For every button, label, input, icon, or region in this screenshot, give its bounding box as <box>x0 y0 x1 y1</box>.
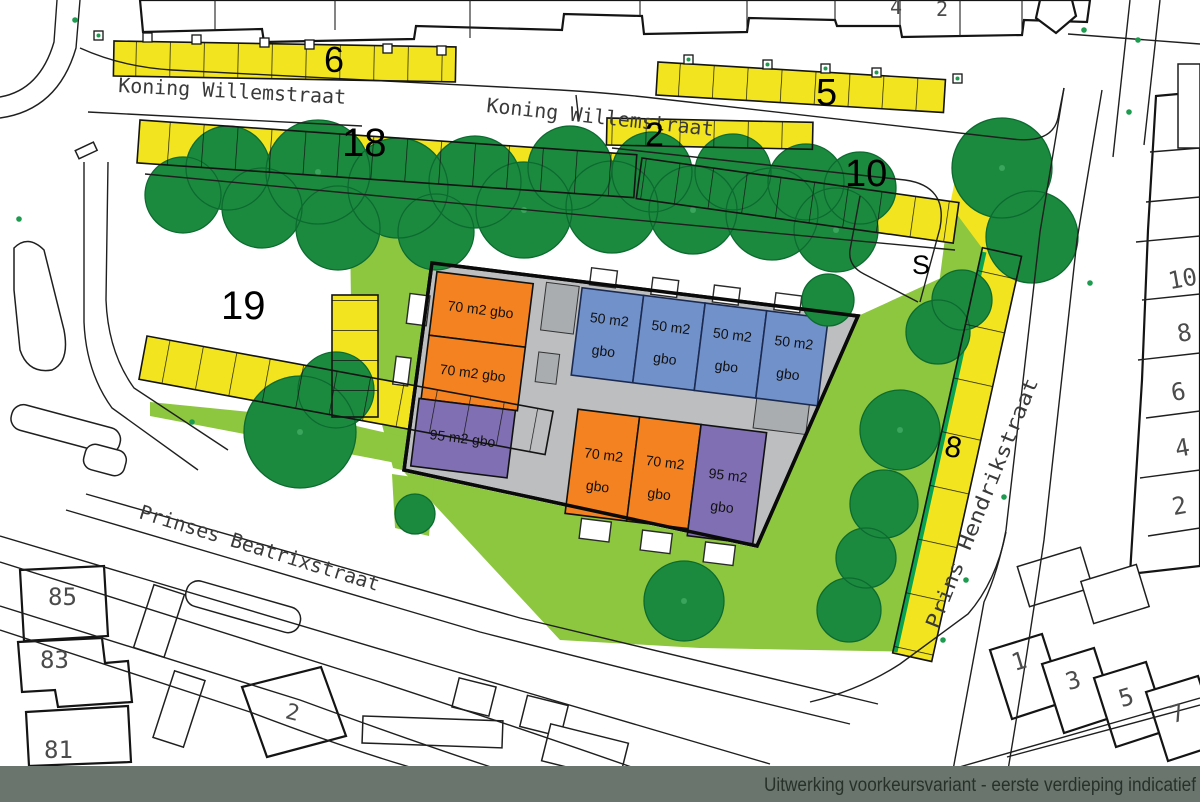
house-number-85: 85 <box>48 583 77 611</box>
area-number-6: 6 <box>324 39 344 80</box>
house-81 <box>26 706 131 766</box>
unit-95m2 <box>687 424 766 543</box>
area-number-2: 2 <box>645 116 664 154</box>
area-number-18: 18 <box>342 121 387 165</box>
plan-drawing: 70 m2 gbo 70 m2 gbo 95 m2 gbo 50 m2 gbo … <box>0 0 1200 802</box>
street-name-beatrix: Prinses Beatrixstraat <box>137 500 383 596</box>
house-number-83: 83 <box>40 646 69 674</box>
house-number-t2: 2 <box>936 0 948 21</box>
unit-label: gbo <box>647 484 672 503</box>
stair-core <box>535 352 560 384</box>
house-topright <box>1178 64 1200 148</box>
street-name-koning-right: Koning Willemstraat <box>485 93 714 141</box>
porch <box>640 530 672 554</box>
caption-bar: Uitwerking voorkeursvariant - eerste ver… <box>0 766 1200 802</box>
site-plan-map: 70 m2 gbo 70 m2 gbo 95 m2 gbo 50 m2 gbo … <box>0 0 1200 802</box>
porch <box>703 542 735 566</box>
traffic-island-3 <box>81 442 128 478</box>
house-number-81: 81 <box>44 736 73 764</box>
unit-label: gbo <box>714 357 739 376</box>
unit-label: gbo <box>585 477 610 496</box>
traffic-island-1 <box>183 578 304 636</box>
unit-50m2 <box>571 288 643 383</box>
unit-50m2 <box>633 295 705 390</box>
area-number-19: 19 <box>221 284 266 328</box>
house-number-r10: 10 <box>1166 263 1199 296</box>
unit-label: gbo <box>591 341 616 360</box>
house-number-t4: 4 <box>890 0 902 19</box>
shed-1 <box>452 678 496 716</box>
structure-br-2 <box>1081 564 1149 623</box>
traffic-island-4 <box>75 142 97 159</box>
house-83 <box>18 638 132 707</box>
area-number-10: 10 <box>845 153 887 195</box>
structure-br-1 <box>1017 547 1092 606</box>
outbuilding-1 <box>134 585 185 658</box>
unit-label: gbo <box>775 364 800 383</box>
unit-50m2 <box>694 303 766 398</box>
caption-text: Uitwerking voorkeursvariant - eerste ver… <box>764 775 1197 796</box>
porch <box>579 518 611 542</box>
area-number-5: 5 <box>816 72 837 114</box>
unit-label: gbo <box>710 497 735 516</box>
unit-50m2 <box>756 311 828 406</box>
area-letter-s: S <box>912 250 930 280</box>
unit-label: gbo <box>652 349 677 368</box>
bay-window <box>1036 0 1076 33</box>
traffic-island-teardrop <box>14 241 66 370</box>
stair-core <box>541 282 580 334</box>
garage-row <box>362 716 503 748</box>
